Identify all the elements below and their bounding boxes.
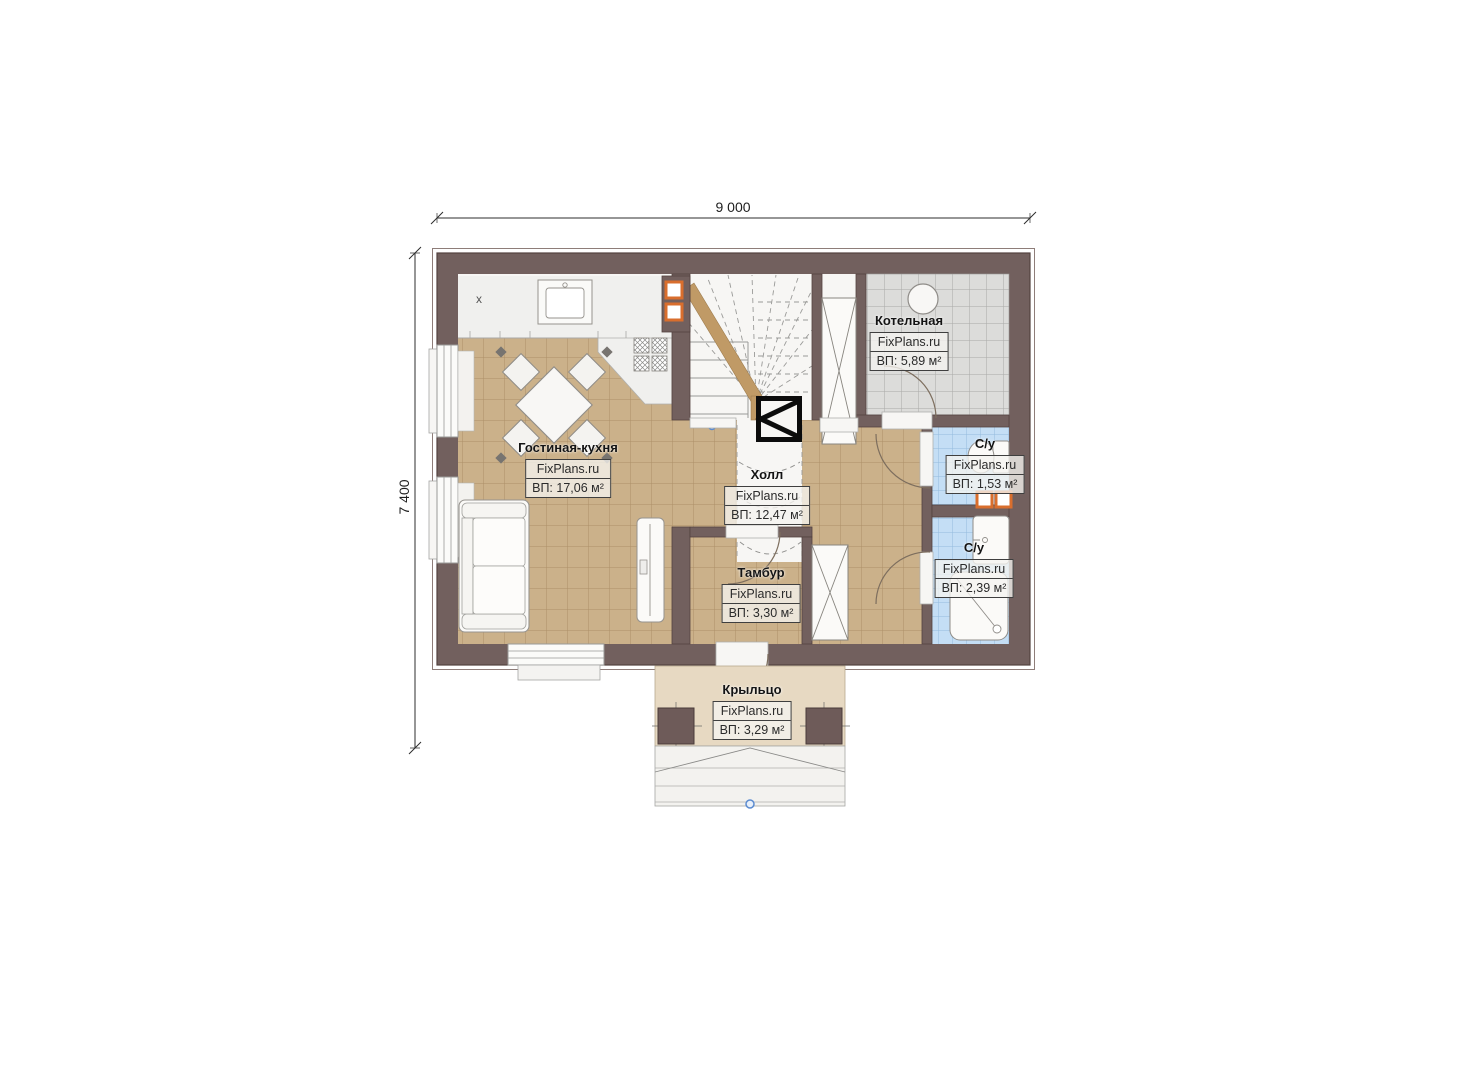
vent-block: [977, 492, 992, 507]
room-info-box: FixPlans.ru ВП: 5,89 м²: [870, 332, 949, 371]
dimension-width-label: 9 000: [715, 199, 750, 215]
room-area: ВП: 17,06 м²: [526, 478, 610, 497]
room-label-wc-small: С/у FixPlans.ru ВП: 1,53 м²: [946, 436, 1025, 494]
floor-plan-drawing: [0, 0, 1474, 1080]
room-info-box: FixPlans.ru ВП: 2,39 м²: [935, 559, 1014, 598]
room-label-hall: Холл FixPlans.ru ВП: 12,47 м²: [724, 467, 810, 525]
room-brand: FixPlans.ru: [526, 460, 610, 478]
room-info-box: FixPlans.ru ВП: 3,29 м²: [713, 701, 792, 740]
room-name: С/у: [946, 436, 1025, 451]
room-name: Котельная: [870, 313, 949, 328]
sofa: [459, 500, 529, 632]
room-brand: FixPlans.ru: [725, 487, 809, 505]
room-area: ВП: 1,53 м²: [947, 474, 1024, 493]
fridge-mark: x: [476, 292, 482, 306]
wall-boiler-left: [856, 274, 866, 425]
room-brand: FixPlans.ru: [936, 560, 1013, 578]
room-area: ВП: 12,47 м²: [725, 505, 809, 524]
room-name: Тамбур: [722, 565, 801, 580]
room-label-wc-shower: С/у FixPlans.ru ВП: 2,39 м²: [935, 540, 1014, 598]
room-label-boiler: Котельная FixPlans.ru ВП: 5,89 м²: [870, 313, 949, 371]
window-left-upper: [429, 345, 474, 437]
room-info-box: FixPlans.ru ВП: 3,30 м²: [722, 584, 801, 623]
room-label-living-kitchen: Гостиная-кухня FixPlans.ru ВП: 17,06 м²: [518, 440, 618, 498]
vent-block: [996, 492, 1011, 507]
vent-block: [666, 304, 682, 320]
wall-stairs-right: [812, 274, 822, 420]
room-name: Гостиная-кухня: [518, 440, 618, 455]
room-name: С/у: [935, 540, 1014, 555]
wall-kitchen-vestibule: [672, 527, 690, 644]
room-name: Крыльцо: [713, 682, 792, 697]
threshold-vestibule-door: [726, 525, 778, 538]
boiler-tank: [908, 284, 938, 314]
porch-column: [806, 708, 842, 744]
threshold-closet-hall: [820, 418, 858, 432]
wall-boiler-bottom: [856, 415, 1009, 427]
dimension-height-label: 7 400: [396, 479, 412, 514]
room-info-box: FixPlans.ru ВП: 17,06 м²: [525, 459, 611, 498]
room-brand: FixPlans.ru: [871, 333, 948, 351]
room-area: ВП: 5,89 м²: [871, 351, 948, 370]
threshold-boiler-door: [882, 412, 932, 429]
closet-lower: [812, 545, 848, 640]
room-brand: FixPlans.ru: [723, 585, 800, 603]
threshold-stairs-hall: [690, 418, 736, 428]
survey-point-dot: [746, 800, 754, 808]
threshold-entrance-door: [716, 642, 768, 667]
threshold-wc-shower-door: [920, 552, 933, 604]
room-label-vestibule: Тамбур FixPlans.ru ВП: 3,30 м²: [722, 565, 801, 623]
porch-steps: [655, 746, 845, 806]
threshold-wc-small-door: [920, 432, 933, 486]
vent-block: [666, 282, 682, 298]
room-label-porch: Крыльцо FixPlans.ru ВП: 3,29 м²: [713, 682, 792, 740]
room-info-box: FixPlans.ru ВП: 1,53 м²: [946, 455, 1025, 494]
floor-plan-canvas: 9 000 7 400 x Гостиная-кухня FixPlans.ru…: [0, 0, 1474, 1080]
window-bottom: [508, 644, 604, 680]
room-area: ВП: 3,30 м²: [723, 603, 800, 622]
porch-column: [658, 708, 694, 744]
room-area: ВП: 2,39 м²: [936, 578, 1013, 597]
room-info-box: FixPlans.ru ВП: 12,47 м²: [724, 486, 810, 525]
wall-vestibule-right: [802, 537, 812, 644]
room-brand: FixPlans.ru: [714, 702, 791, 720]
room-area: ВП: 3,29 м²: [714, 720, 791, 739]
kitchen-sink: [538, 280, 592, 324]
tall-cabinet: [637, 518, 664, 622]
room-name: Холл: [724, 467, 810, 482]
room-brand: FixPlans.ru: [947, 456, 1024, 474]
